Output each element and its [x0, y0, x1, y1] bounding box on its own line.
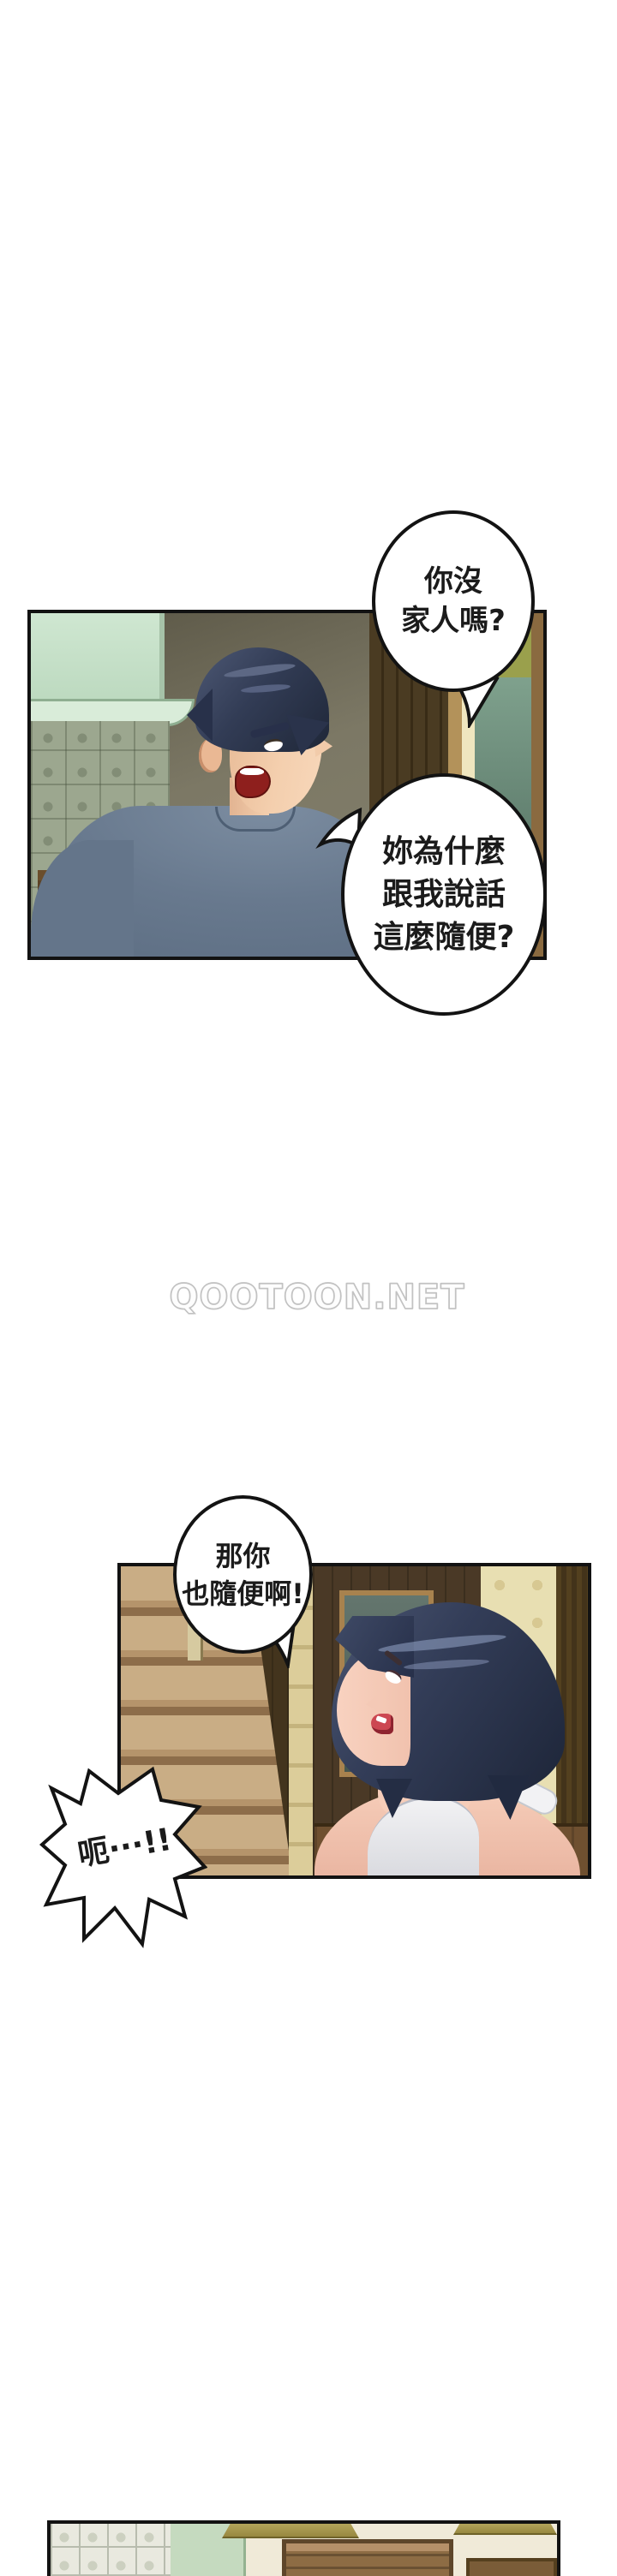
wood-furniture — [466, 2558, 557, 2576]
speech-bubble-man-1: 你沒 家人嗎? — [372, 510, 535, 692]
bubble-line: 家人嗎? — [401, 601, 506, 641]
watermark: QOOTOON.NET — [169, 1278, 464, 1317]
bubble-line: 你沒 — [401, 562, 506, 601]
ceiling-lamp-shade — [222, 2524, 359, 2538]
ceiling-lamp-shade — [453, 2524, 557, 2535]
mint-cabinet — [31, 613, 165, 703]
speech-bubble-woman: 那你 也隨便啊! — [173, 1495, 313, 1654]
bubble-line: 這麼隨便? — [374, 916, 515, 959]
panel-kitchen-sliver — [47, 2520, 560, 2576]
wood-cabinet — [282, 2539, 453, 2576]
comic-page: QOOTOON.NET 你沒 家人嗎? 妳為什麼 跟我說話 這麼隨便? 那你 — [0, 0, 617, 2576]
bubble-line: 也隨便啊! — [182, 1575, 304, 1613]
man-teeth — [240, 768, 264, 775]
bubble-line: 那你 — [182, 1537, 304, 1575]
speech-bubble-man-2: 妳為什麼 跟我說話 這麼隨便? — [341, 773, 547, 1016]
bubble-line: 跟我說話 — [374, 874, 515, 916]
bubble-line: 妳為什麼 — [374, 831, 515, 874]
tiled-wallpaper — [51, 2524, 171, 2576]
